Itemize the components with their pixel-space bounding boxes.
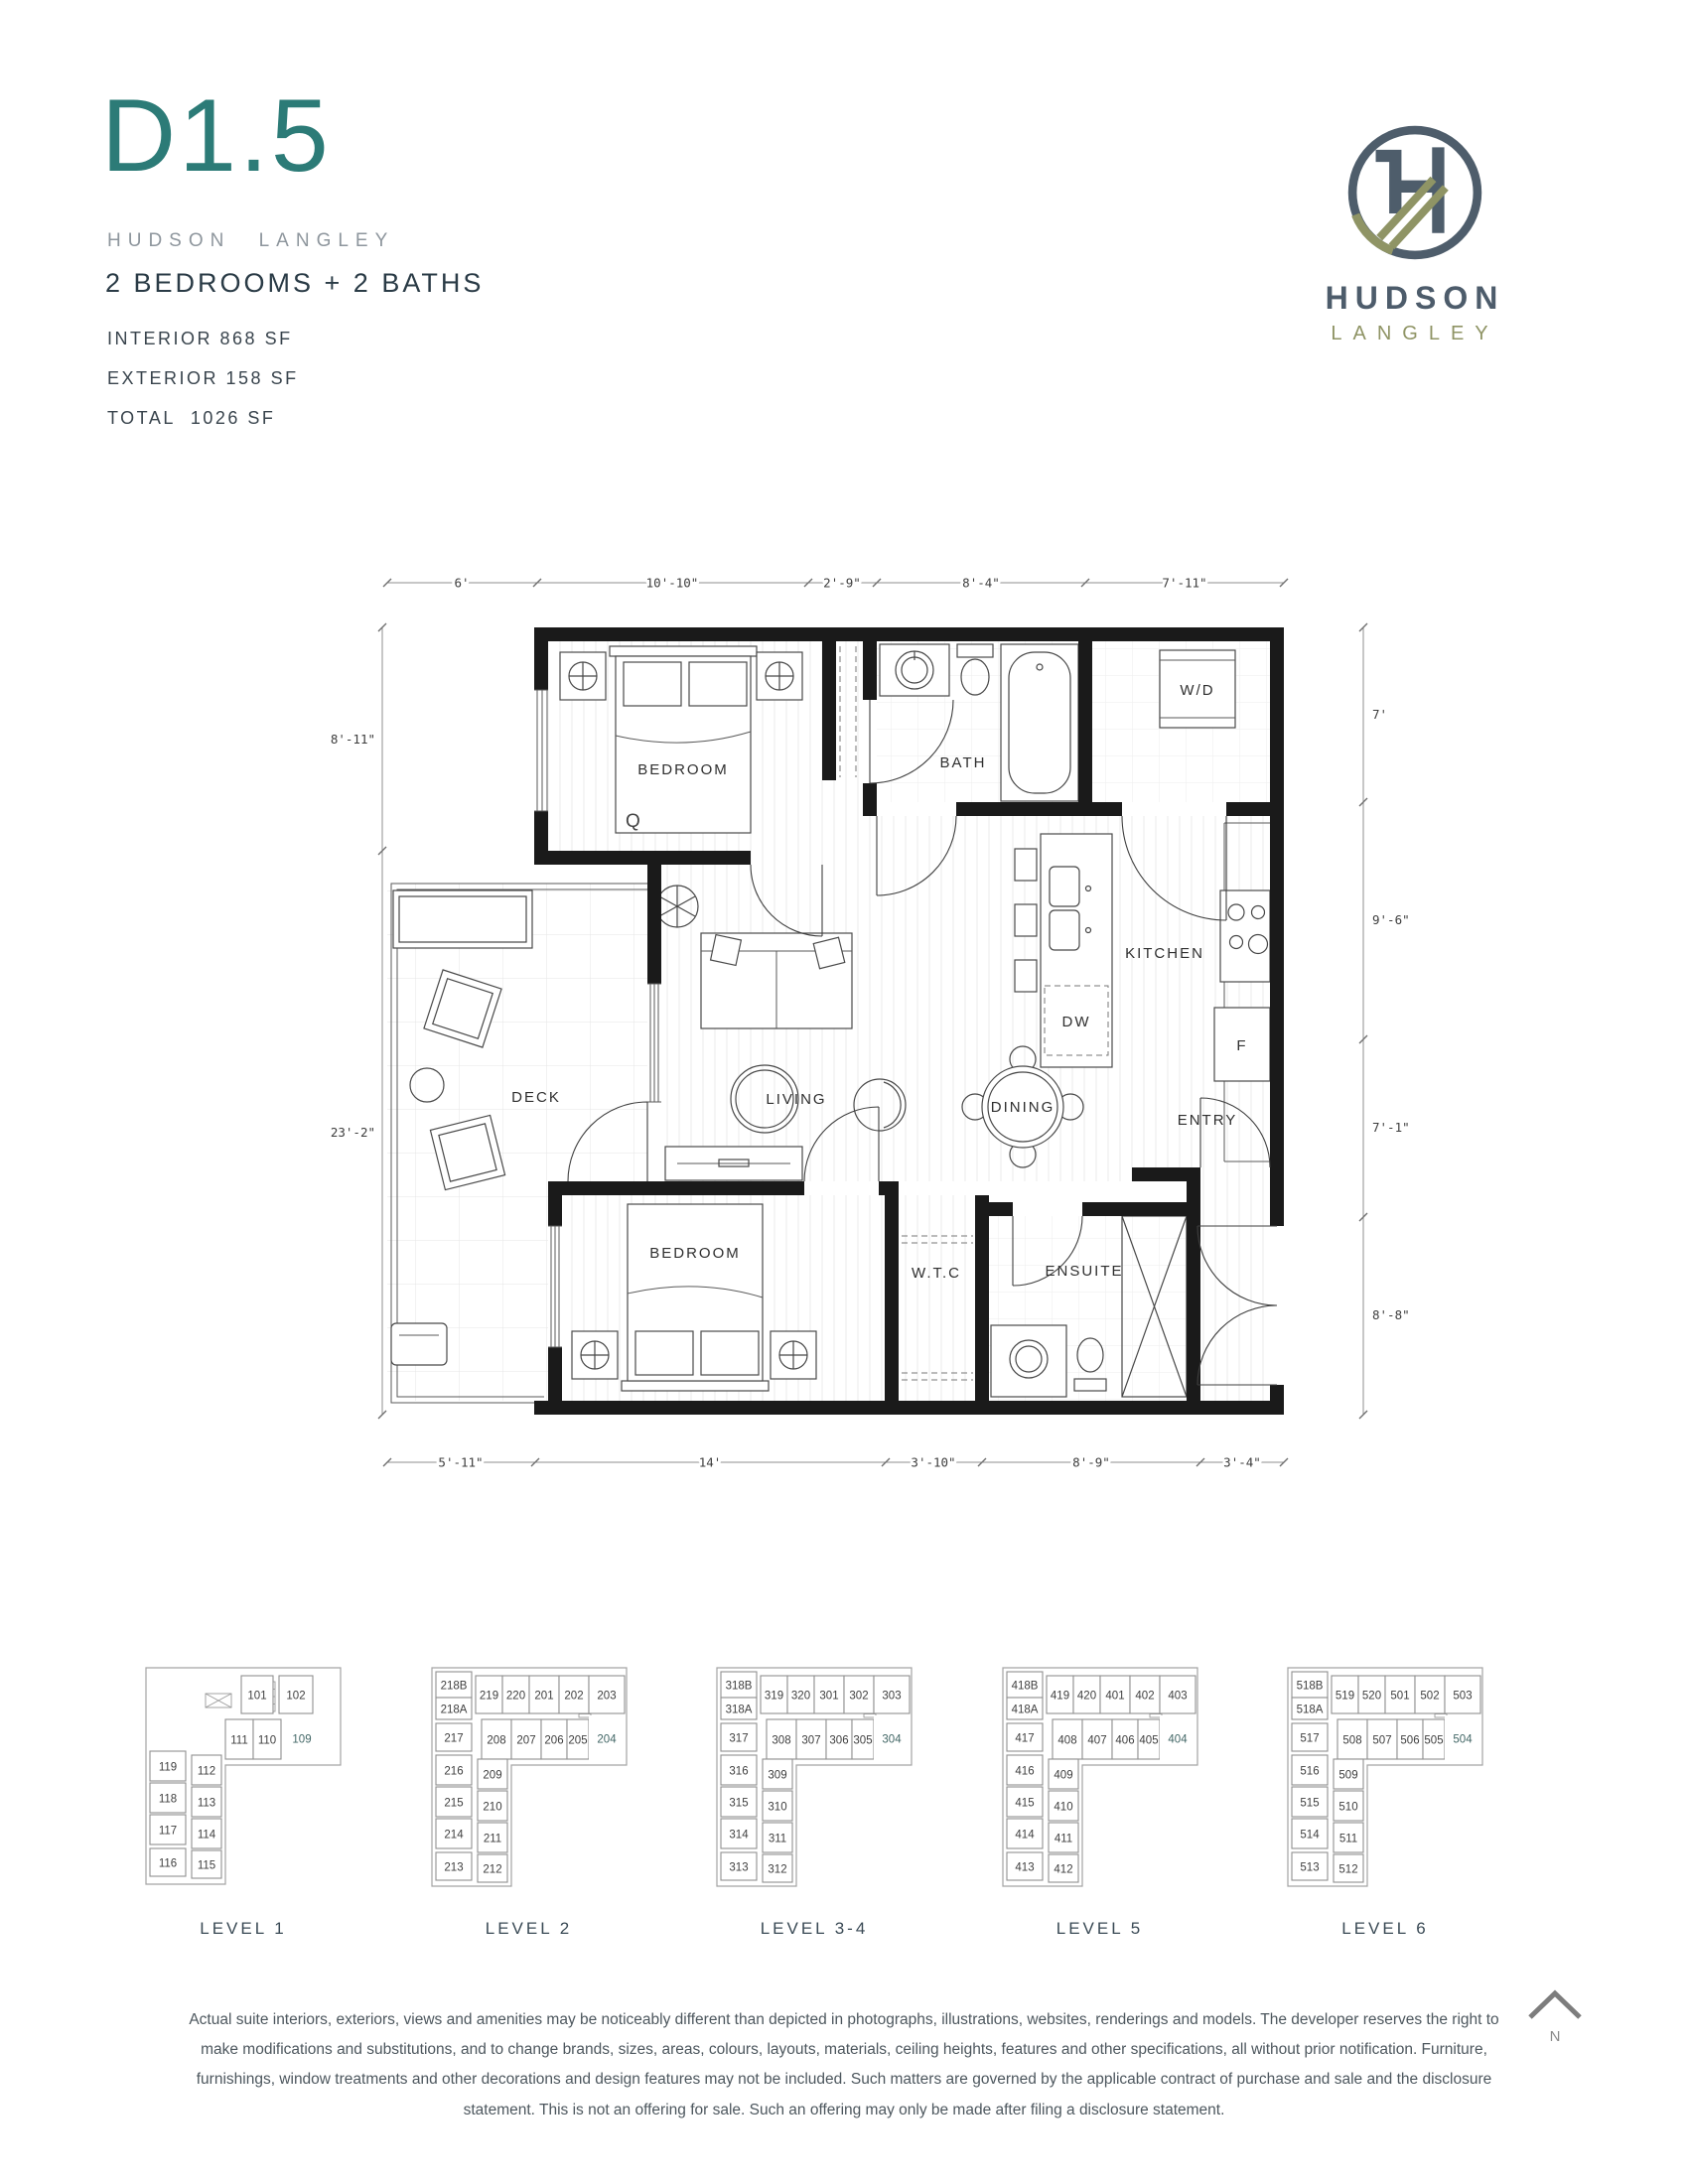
logo-wordmark: HUDSON (1291, 280, 1539, 317)
keyplan-row: 101102111110109119118117116112113114115 … (139, 1656, 1489, 1939)
keyplan-unit-number: 411 (1054, 1834, 1071, 1845)
unit-mix-subtitle: 2 BEDROOMS + 2 BATHS (105, 268, 484, 299)
keyplan-unit-number: 216 (444, 1766, 463, 1778)
keyplan-unit-number: 516 (1300, 1766, 1319, 1778)
keyplan-unit-number: 407 (1087, 1735, 1106, 1747)
hudson-monogram-icon (1340, 119, 1489, 266)
keyplan-unit-number: 517 (1300, 1733, 1319, 1745)
keyplan-map-level-1: 101102111110109119118117116112113114115 (142, 1656, 345, 1892)
keyplan-unit-number: 403 (1168, 1691, 1187, 1703)
keyplan-unit-number: 505 (1424, 1735, 1443, 1747)
legal-disclaimer: Actual suite interiors, exteriors, views… (169, 2005, 1519, 2125)
keyplan-level-1: 101102111110109119118117116112113114115 … (139, 1656, 348, 1939)
keyplan-unit-number: 204 (597, 1734, 617, 1746)
keyplan-unit-number: 420 (1076, 1691, 1095, 1703)
keyplan-unit-number: 417 (1015, 1733, 1034, 1745)
dim-label: 2'-9" (823, 576, 861, 591)
keyplan-unit-number: 508 (1342, 1735, 1361, 1747)
keyplan-canvas: 218B218A21922020120220321720820720620520… (428, 1656, 631, 1897)
room-label-wtc: W.T.C (912, 1265, 961, 1282)
keyplan-unit-number: 101 (247, 1691, 266, 1703)
keyplan-unit-number: 510 (1338, 1802, 1357, 1814)
keyplan-unit-number: 404 (1168, 1734, 1188, 1746)
logo-submark: LANGLEY (1291, 323, 1539, 345)
keyplan-unit-number: 501 (1390, 1691, 1409, 1703)
keyplan-unit-number: 507 (1372, 1735, 1391, 1747)
keyplan-unit-number: 313 (729, 1862, 748, 1874)
keyplan-level-label: LEVEL 3-4 (761, 1919, 869, 1939)
keyplan-unit-number: 317 (729, 1733, 748, 1745)
keyplan-level-3-4: 318B318A31932030130230331730830730630530… (710, 1656, 918, 1939)
dim-label: 7'-11" (1162, 576, 1206, 591)
keyplan-unit-number: 116 (159, 1858, 177, 1870)
keyplan-unit-number: 215 (444, 1798, 463, 1810)
keyplan-unit-number: 418B (1011, 1681, 1038, 1693)
room-label-kitchen: KITCHEN (1125, 945, 1204, 962)
keyplan-unit-number: 513 (1300, 1862, 1319, 1874)
keyplan-unit-number: 119 (159, 1762, 177, 1774)
keyplan-unit-number: 406 (1115, 1735, 1134, 1747)
stat-value: 1026 SF (191, 408, 276, 428)
keyplan-unit-number: 218B (440, 1681, 467, 1693)
keyplan-unit-number: 315 (729, 1798, 748, 1810)
stat-label: TOTAL (107, 408, 176, 428)
keyplan-unit-number: 115 (198, 1860, 215, 1872)
keyplan-level-label: LEVEL 6 (1341, 1919, 1428, 1939)
keyplan-canvas: 318B318A31932030130230331730830730630530… (713, 1656, 915, 1897)
keyplan-unit-number: 405 (1139, 1735, 1158, 1747)
keyplan-canvas: 518B518A51952050150250351750850750650550… (1284, 1656, 1486, 1897)
keyplan-unit-number: 512 (1338, 1864, 1357, 1876)
keyplan-unit-number: 304 (882, 1734, 902, 1746)
keyplan-unit-number: 320 (791, 1691, 810, 1703)
brand-logo: HUDSON LANGLEY (1291, 119, 1539, 345)
keyplan-unit-number: 409 (1054, 1770, 1072, 1782)
keyplan-unit-number: 206 (544, 1735, 563, 1747)
room-label-deck: DECK (511, 1089, 561, 1106)
keyplan-level-label: LEVEL 1 (200, 1919, 286, 1939)
room-label-dw: DW (1062, 1014, 1091, 1030)
keyplan-map-level-2: 218B218A21922020120220321720820720620520… (428, 1656, 631, 1892)
room-label-bedroom-top: BEDROOM (637, 761, 729, 778)
keyplan-unit-number: 515 (1300, 1798, 1319, 1810)
dim-label: 10'-10" (646, 576, 699, 591)
keyplan-unit-number: 311 (769, 1834, 786, 1845)
keyplan-unit-number: 202 (564, 1691, 583, 1703)
keyplan-canvas: 101102111110109119118117116112113114115 (142, 1656, 345, 1897)
keyplan-unit-number: 301 (819, 1691, 838, 1703)
stat-exterior: EXTERIOR 158 SF (107, 367, 299, 407)
plan-code-title: D1.5 (101, 77, 332, 196)
keyplan-unit-number: 309 (768, 1770, 786, 1782)
project-name: HUDSON LANGLEY (107, 230, 394, 252)
dim-label: 6' (454, 576, 469, 591)
keyplan-unit-number: 205 (568, 1735, 587, 1747)
dim-label: 7'-1" (1372, 1120, 1410, 1135)
keyplan-unit-number: 302 (849, 1691, 868, 1703)
floorplan-sheet: D1.5 HUDSON LANGLEY 2 BEDROOMS + 2 BATHS… (0, 0, 1688, 2184)
room-label-dining: DINING (991, 1099, 1055, 1116)
keyplan-unit-number: 416 (1015, 1766, 1034, 1778)
keyplan-unit-number: 310 (768, 1802, 786, 1814)
keyplan-unit-number: 506 (1400, 1735, 1419, 1747)
keyplan-unit-number: 303 (882, 1691, 901, 1703)
dim-label: 8'-11" (331, 732, 375, 747)
dim-label: 9'-6" (1372, 912, 1410, 927)
room-label-living: LIVING (766, 1091, 826, 1108)
keyplan-unit-number: 217 (444, 1733, 463, 1745)
north-label: N (1524, 2028, 1586, 2045)
room-label-wd: W/D (1180, 682, 1214, 699)
keyplan-unit-number: 518B (1297, 1681, 1324, 1693)
room-label-queen: Q (626, 811, 640, 832)
keyplan-unit-number: 213 (444, 1862, 463, 1874)
north-indicator: N (1524, 1985, 1586, 2045)
stat-label: INTERIOR (107, 329, 212, 348)
stat-total: TOTAL 1026 SF (107, 407, 299, 447)
keyplan-map-level-6: 518B518A51952050150250351750850750650550… (1284, 1656, 1486, 1892)
keyplan-canvas: 418B418A41942040140240341740840740640540… (999, 1656, 1201, 1897)
floor-plan-drawing: 6' 10'-10" 2'-9" 8'-4" 7'-11" 5'-11" 14'… (328, 541, 1430, 1524)
keyplan-map-level-3-4: 318B318A31932030130230331730830730630530… (713, 1656, 915, 1892)
keyplan-unit-number: 203 (597, 1691, 616, 1703)
dim-label: 3'-10" (911, 1455, 955, 1470)
keyplan-unit-number: 415 (1015, 1798, 1034, 1810)
dim-label: 8'-4" (962, 576, 1000, 591)
room-label-fridge: F (1236, 1037, 1247, 1054)
keyplan-unit-number: 318B (726, 1681, 753, 1693)
north-arrow-icon (1524, 1985, 1586, 2021)
keyplan-unit-number: 504 (1453, 1734, 1473, 1746)
keyplan-unit-number: 109 (292, 1734, 311, 1746)
keyplan-unit-number: 511 (1339, 1834, 1357, 1845)
keyplan-unit-number: 314 (729, 1830, 749, 1842)
keyplan-unit-number: 208 (487, 1735, 505, 1747)
keyplan-unit-number: 207 (516, 1735, 535, 1747)
keyplan-unit-number: 210 (483, 1802, 501, 1814)
keyplan-unit-number: 306 (829, 1735, 848, 1747)
keyplan-unit-number: 102 (286, 1691, 305, 1703)
room-label-bedroom-bottom: BEDROOM (649, 1245, 741, 1262)
keyplan-unit-number: 414 (1015, 1830, 1035, 1842)
keyplan-unit-number: 110 (258, 1735, 276, 1747)
keyplan-unit-number: 112 (198, 1766, 215, 1778)
keyplan-level-6: 518B518A51952050150250351750850750650550… (1281, 1656, 1489, 1939)
keyplan-unit-number: 305 (853, 1735, 872, 1747)
stat-interior: INTERIOR 868 SF (107, 328, 299, 367)
dim-label: 8'-9" (1072, 1455, 1110, 1470)
keyplan-unit-number: 211 (483, 1834, 500, 1845)
keyplan-unit-number: 113 (198, 1798, 215, 1810)
keyplan-unit-number: 117 (159, 1826, 177, 1838)
keyplan-unit-number: 503 (1453, 1691, 1472, 1703)
dim-label: 14' (699, 1455, 722, 1470)
keyplan-unit-number: 209 (483, 1770, 501, 1782)
keyplan-unit-number: 114 (198, 1830, 216, 1842)
room-label-bath: BATH (940, 754, 987, 771)
keyplan-unit-number: 316 (729, 1766, 748, 1778)
dim-label: 8'-8" (1372, 1307, 1410, 1322)
room-label-ensuite: ENSUITE (1045, 1263, 1123, 1280)
keyplan-unit-number: 502 (1420, 1691, 1439, 1703)
keyplan-unit-number: 218A (440, 1705, 467, 1716)
keyplan-unit-number: 307 (801, 1735, 820, 1747)
room-label-entry: ENTRY (1178, 1112, 1238, 1129)
keyplan-unit-number: 219 (479, 1691, 497, 1703)
keyplan-unit-number: 412 (1054, 1864, 1072, 1876)
keyplan-unit-number: 220 (505, 1691, 524, 1703)
keyplan-unit-number: 201 (534, 1691, 553, 1703)
keyplan-unit-number: 118 (159, 1794, 177, 1806)
keyplan-unit-number: 214 (444, 1830, 464, 1842)
keyplan-unit-number: 520 (1362, 1691, 1381, 1703)
stat-value: 158 SF (226, 368, 299, 388)
keyplan-unit-number: 308 (772, 1735, 790, 1747)
dim-label: 5'-11" (438, 1455, 483, 1470)
stat-label: EXTERIOR (107, 368, 218, 388)
keyplan-level-label: LEVEL 5 (1056, 1919, 1143, 1939)
keyplan-unit-number: 419 (1050, 1691, 1068, 1703)
keyplan-unit-number: 402 (1135, 1691, 1154, 1703)
dim-label: 3'-4" (1223, 1455, 1261, 1470)
keyplan-unit-number: 212 (483, 1864, 501, 1876)
keyplan-level-2: 218B218A21922020120220321720820720620520… (425, 1656, 633, 1939)
area-stats: INTERIOR 868 SF EXTERIOR 158 SF TOTAL 10… (107, 328, 299, 447)
keyplan-map-level-5: 418B418A41942040140240341740840740640540… (999, 1656, 1201, 1892)
keyplan-level-label: LEVEL 2 (486, 1919, 572, 1939)
stat-value: 868 SF (220, 329, 293, 348)
keyplan-unit-number: 318A (726, 1705, 753, 1716)
keyplan-unit-number: 111 (230, 1735, 247, 1747)
keyplan-unit-number: 410 (1054, 1802, 1072, 1814)
dim-label: 23'-2" (331, 1125, 375, 1140)
keyplan-unit-number: 312 (768, 1864, 786, 1876)
keyplan-unit-number: 401 (1105, 1691, 1124, 1703)
keyplan-unit-number: 319 (765, 1691, 783, 1703)
keyplan-unit-number: 509 (1338, 1770, 1357, 1782)
keyplan-unit-number: 514 (1300, 1830, 1320, 1842)
dim-label: 7' (1372, 707, 1387, 722)
keyplan-unit-number: 519 (1336, 1691, 1354, 1703)
keyplan-unit-number: 518A (1297, 1705, 1324, 1716)
keyplan-unit-number: 413 (1015, 1862, 1034, 1874)
keyplan-unit-number: 408 (1057, 1735, 1076, 1747)
keyplan-unit-number: 418A (1011, 1705, 1038, 1716)
keyplan-level-5: 418B418A41942040140240341740840740640540… (996, 1656, 1204, 1939)
